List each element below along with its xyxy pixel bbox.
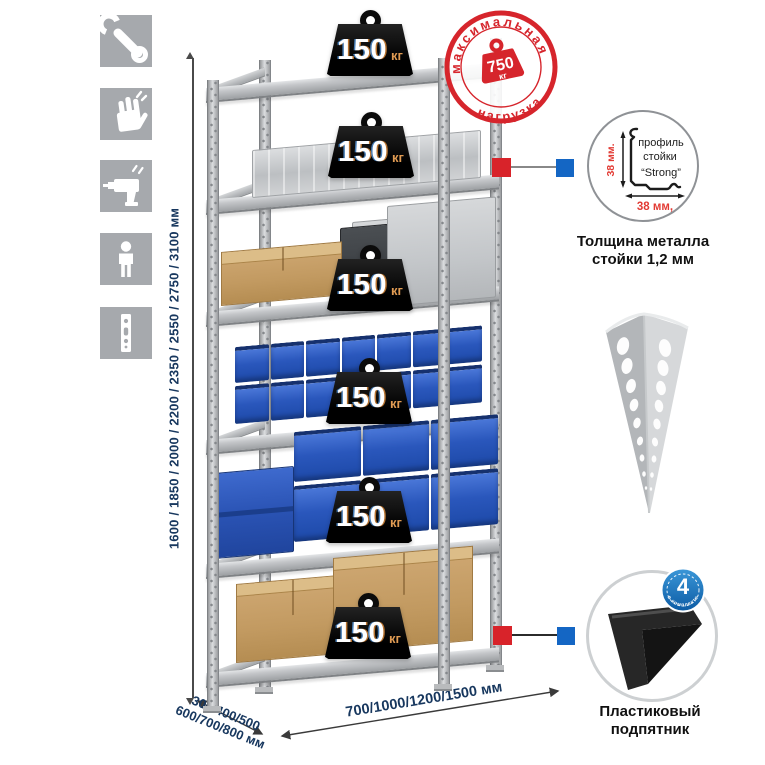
height-dimension-line: [192, 58, 194, 698]
blue-crate: [214, 466, 294, 559]
person-tile: [100, 233, 152, 285]
shelf-load-badge-6: 150кг: [325, 593, 411, 659]
drill-tile: [100, 160, 152, 212]
person-icon: [100, 233, 152, 285]
depth-dimension-label: 300/400/500 600/700/800 мм: [150, 680, 296, 762]
badge-count: 4: [677, 574, 690, 599]
upright-tile: [100, 307, 152, 359]
profile-detail-circle: 38 мм. 38 мм, профиль стойки “Strong”: [587, 110, 699, 222]
profile-caption: Толщина металла стойки 1,2 мм: [568, 233, 718, 270]
upright-post-photo: [596, 298, 706, 533]
rack-post-front-left: [207, 80, 219, 710]
drill-icon: [100, 160, 152, 212]
wrench-icon: [100, 15, 152, 67]
post-profile-icon: [100, 307, 152, 359]
rack-post-front-right: [438, 58, 450, 688]
shelf-load-badge-5: 150кг: [326, 477, 412, 543]
profile-dim-vertical: 38 мм.: [605, 143, 617, 176]
width-dimension-label: 700/1000/1200/1500 мм: [288, 670, 559, 730]
gloves-icon: [100, 88, 152, 140]
rack-post-back-right: [490, 38, 502, 668]
included-count-badge: 4 в комплекте: [660, 567, 706, 613]
product-infographic: 1600 / 1850 / 2000 / 2200 / 2350 / 2550 …: [0, 0, 765, 765]
profile-label-1: профиль: [638, 137, 684, 149]
shelf-load-badge-2: 150кг: [328, 112, 414, 178]
profile-dim-horizontal: 38 мм,: [637, 201, 673, 213]
profile-label-2: стойки: [643, 151, 677, 163]
height-dimension-label: 1600 / 1850 / 2000 / 2200 / 2350 / 2550 …: [167, 49, 184, 709]
profile-label-3: “Strong”: [641, 167, 681, 179]
shelf-load-badge-4: 150кг: [326, 358, 412, 424]
callout-marker-blue-top: [556, 159, 574, 177]
foot-caption: Пластиковый подпятник: [575, 703, 725, 740]
callout-marker-red-bottom: [493, 626, 512, 645]
callout-marker-blue-bottom: [557, 627, 575, 645]
shelf-load-badge-1: 150кг: [327, 10, 413, 76]
cardboard-box: [221, 241, 342, 306]
post-foot: [255, 687, 273, 694]
callout-marker-red-top: [492, 158, 511, 177]
post-foot: [434, 684, 452, 691]
max-load-stamp: 750 кг максимальная нагрузка: [431, 0, 571, 137]
post-foot: [203, 706, 221, 713]
assembly-tools-tile: [100, 15, 152, 67]
gloves-tile: [100, 88, 152, 140]
height-dimension-arrow-top: [186, 52, 194, 59]
profile-cross-section: 38 мм. 38 мм, профиль стойки “Strong”: [589, 112, 697, 220]
shelf-load-badge-3: 150кг: [327, 245, 413, 311]
post-foot: [486, 665, 504, 672]
